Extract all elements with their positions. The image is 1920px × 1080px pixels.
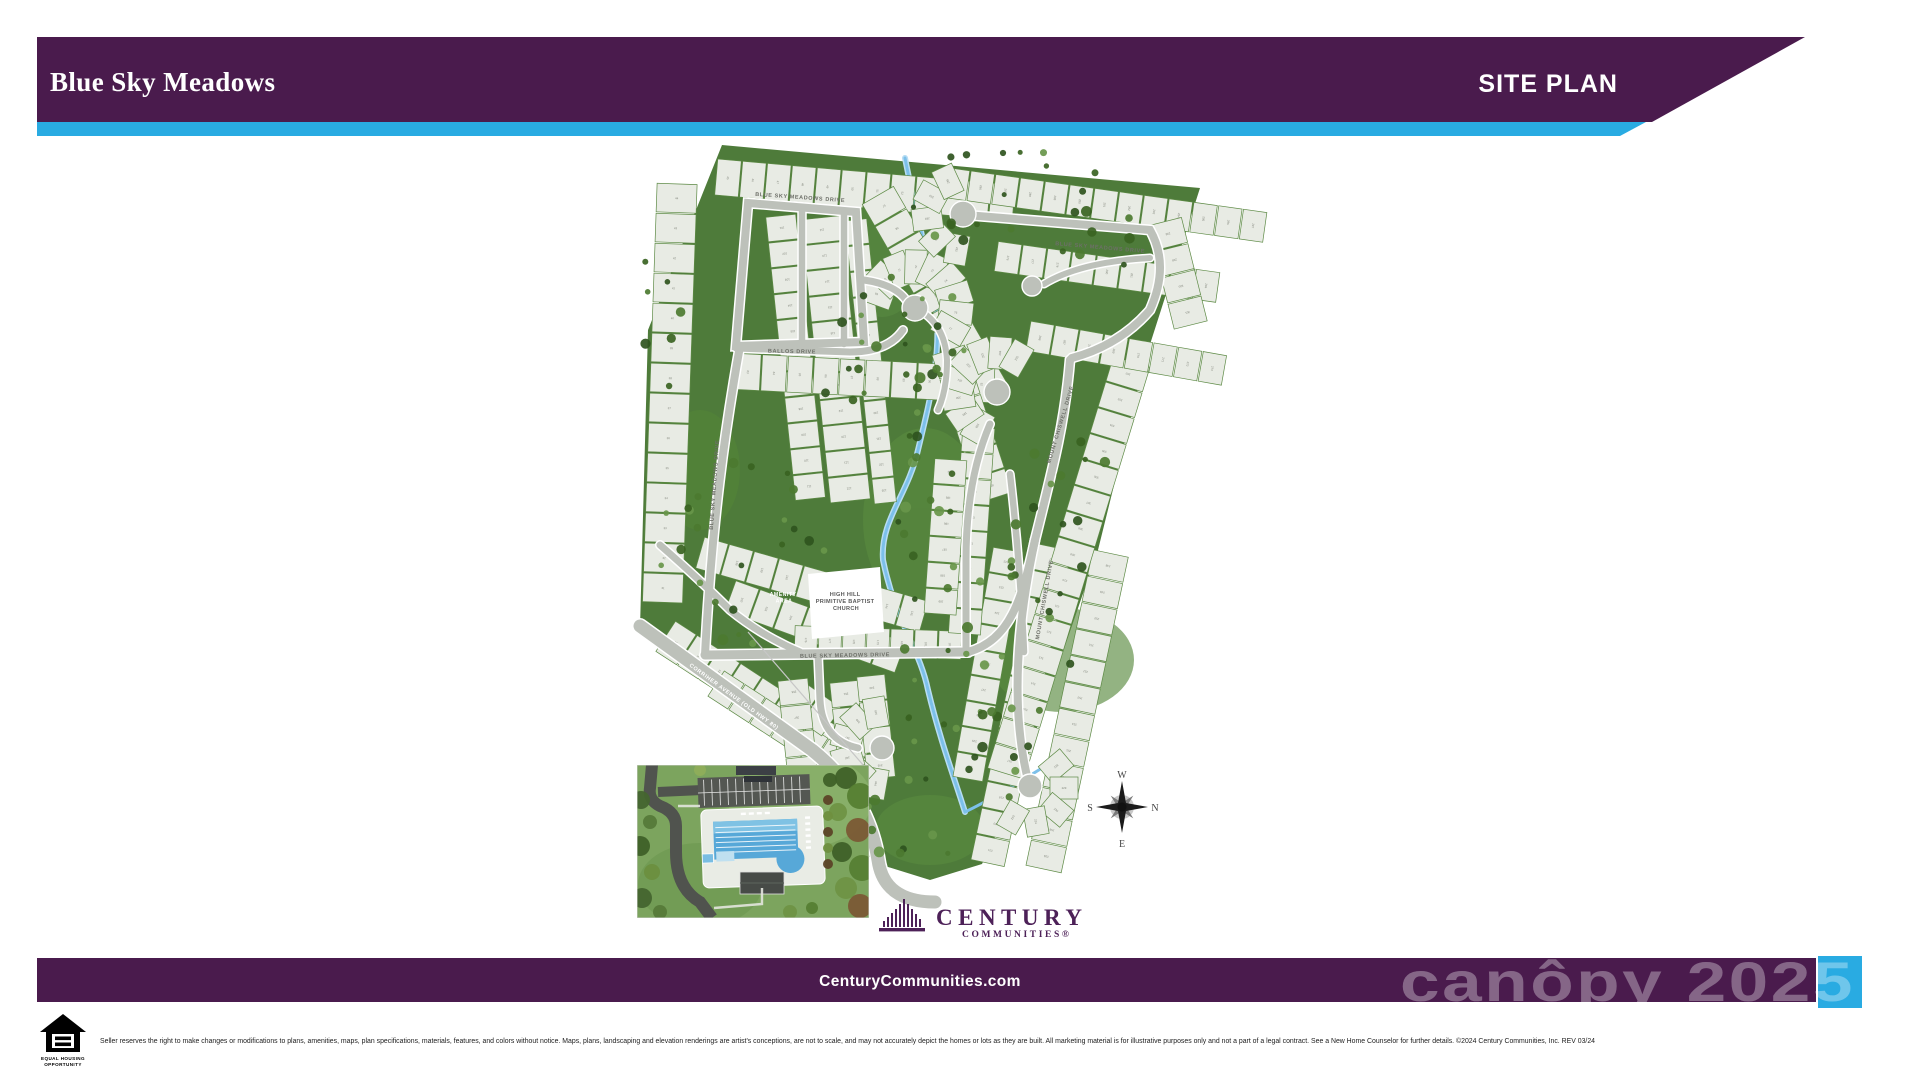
svg-text:109: 109 bbox=[801, 433, 807, 438]
svg-text:114: 114 bbox=[825, 279, 830, 284]
eho-line2: OPPORTUNITY bbox=[44, 1062, 82, 1067]
svg-text:229: 229 bbox=[1062, 786, 1067, 790]
svg-text:188: 188 bbox=[940, 573, 945, 577]
svg-text:37: 37 bbox=[668, 406, 672, 410]
svg-text:178: 178 bbox=[852, 639, 856, 644]
svg-text:297: 297 bbox=[1251, 223, 1256, 229]
svg-text:288: 288 bbox=[1028, 192, 1033, 198]
svg-text:38: 38 bbox=[669, 376, 673, 380]
svg-text:185: 185 bbox=[945, 496, 950, 500]
flyer-canvas: Blue Sky Meadows SITE PLAN 3132333435363… bbox=[0, 0, 1920, 1080]
compass-right: N bbox=[1151, 803, 1158, 814]
svg-text:31: 31 bbox=[661, 586, 665, 590]
compass-rose: W N S E bbox=[1087, 770, 1158, 850]
svg-text:105: 105 bbox=[790, 329, 796, 334]
svg-text:36: 36 bbox=[667, 436, 671, 440]
inset-cabana-roof bbox=[736, 766, 776, 775]
header: Blue Sky Meadows SITE PLAN bbox=[37, 37, 1805, 136]
svg-text:189: 189 bbox=[938, 599, 943, 603]
svg-text:177: 177 bbox=[828, 638, 832, 643]
canopy-watermark: canôpy 2025 bbox=[1400, 950, 1855, 1013]
svg-text:340: 340 bbox=[869, 686, 875, 691]
svg-text:286: 286 bbox=[978, 185, 983, 191]
svg-text:88: 88 bbox=[876, 377, 880, 381]
svg-text:113: 113 bbox=[822, 254, 827, 259]
svg-text:289: 289 bbox=[1053, 195, 1058, 201]
svg-text:122: 122 bbox=[846, 486, 852, 491]
svg-text:204: 204 bbox=[998, 350, 1002, 355]
svg-text:130: 130 bbox=[873, 411, 879, 416]
svg-text:281: 281 bbox=[1129, 273, 1134, 279]
svg-text:41: 41 bbox=[672, 286, 676, 290]
svg-text:89: 89 bbox=[902, 378, 906, 382]
svg-text:108: 108 bbox=[798, 407, 804, 412]
website-link: CenturyCommunities.com bbox=[819, 973, 1021, 990]
svg-text:111: 111 bbox=[806, 484, 811, 488]
svg-text:296: 296 bbox=[1226, 220, 1231, 226]
compass-top: W bbox=[1117, 770, 1127, 781]
svg-text:116: 116 bbox=[830, 331, 835, 336]
svg-text:181: 181 bbox=[924, 642, 928, 647]
brand-name: CENTURY bbox=[936, 905, 1087, 930]
compass-bottom: E bbox=[1119, 839, 1125, 850]
eho-line1: EQUAL HOUSING bbox=[41, 1056, 85, 1061]
svg-text:131: 131 bbox=[876, 437, 882, 442]
svg-text:179: 179 bbox=[876, 640, 880, 645]
header-accent-stripe bbox=[37, 122, 1646, 136]
svg-text:87: 87 bbox=[850, 376, 854, 380]
svg-text:280: 280 bbox=[1105, 269, 1110, 275]
svg-text:33: 33 bbox=[663, 526, 667, 530]
footer-banner-row: CenturyCommunities.com canôpy 2025 bbox=[37, 950, 1862, 1013]
disclaimer-text: Seller reserves the right to make change… bbox=[100, 1037, 1595, 1045]
inset-spa bbox=[702, 854, 713, 863]
svg-text:101: 101 bbox=[779, 226, 785, 231]
svg-text:278: 278 bbox=[1055, 262, 1060, 268]
svg-text:284: 284 bbox=[1204, 283, 1209, 289]
svg-text:42: 42 bbox=[673, 256, 677, 260]
svg-text:34: 34 bbox=[664, 496, 668, 500]
svg-text:103: 103 bbox=[784, 277, 790, 282]
svg-text:356: 356 bbox=[791, 690, 797, 695]
svg-text:110: 110 bbox=[804, 458, 809, 463]
svg-text:92: 92 bbox=[979, 383, 983, 387]
equal-housing-logo: EQUAL HOUSING OPPORTUNITY bbox=[40, 1014, 86, 1067]
svg-text:176: 176 bbox=[804, 638, 808, 643]
page-title: SITE PLAN bbox=[1478, 70, 1618, 98]
svg-text:84: 84 bbox=[772, 372, 776, 376]
svg-text:291: 291 bbox=[1102, 202, 1107, 208]
svg-text:32: 32 bbox=[662, 556, 666, 560]
svg-text:44: 44 bbox=[675, 196, 679, 200]
community-name: Blue Sky Meadows bbox=[50, 67, 275, 97]
svg-text:102: 102 bbox=[782, 252, 788, 257]
svg-text:292: 292 bbox=[1127, 206, 1132, 212]
svg-text:133: 133 bbox=[881, 488, 887, 493]
site-plan-flyer: Blue Sky Meadows SITE PLAN 3132333435363… bbox=[0, 0, 1920, 1080]
brand-subtitle: COMMUNITIES® bbox=[962, 929, 1072, 940]
svg-text:40: 40 bbox=[671, 316, 675, 320]
svg-text:293: 293 bbox=[1152, 209, 1157, 215]
svg-text:115: 115 bbox=[827, 305, 832, 310]
svg-text:343: 343 bbox=[877, 763, 883, 768]
svg-text:351: 351 bbox=[843, 692, 849, 697]
svg-text:186: 186 bbox=[943, 522, 948, 526]
svg-text:104: 104 bbox=[787, 303, 793, 308]
svg-text:121: 121 bbox=[843, 460, 849, 465]
svg-text:112: 112 bbox=[819, 228, 824, 233]
svg-text:283: 283 bbox=[924, 216, 930, 221]
svg-text:295: 295 bbox=[1201, 216, 1206, 222]
svg-text:72: 72 bbox=[914, 265, 918, 269]
compass-left: S bbox=[1087, 803, 1093, 814]
amenity-aerial-inset bbox=[630, 752, 875, 927]
svg-text:90: 90 bbox=[928, 380, 932, 384]
svg-text:276: 276 bbox=[1006, 255, 1011, 261]
svg-text:35: 35 bbox=[666, 466, 670, 470]
svg-text:277: 277 bbox=[1030, 259, 1035, 265]
svg-text:120: 120 bbox=[841, 435, 847, 440]
svg-text:187: 187 bbox=[942, 548, 947, 552]
svg-text:39: 39 bbox=[670, 346, 674, 350]
svg-text:85: 85 bbox=[798, 373, 802, 377]
svg-text:83: 83 bbox=[746, 370, 750, 374]
svg-text:132: 132 bbox=[878, 462, 884, 467]
street-label-ballos: BALLOS DRIVE bbox=[768, 349, 816, 356]
svg-text:86: 86 bbox=[824, 374, 828, 378]
svg-text:119: 119 bbox=[838, 409, 843, 414]
svg-text:43: 43 bbox=[674, 226, 678, 230]
svg-text:357: 357 bbox=[794, 716, 800, 721]
svg-text:290: 290 bbox=[1077, 199, 1082, 205]
